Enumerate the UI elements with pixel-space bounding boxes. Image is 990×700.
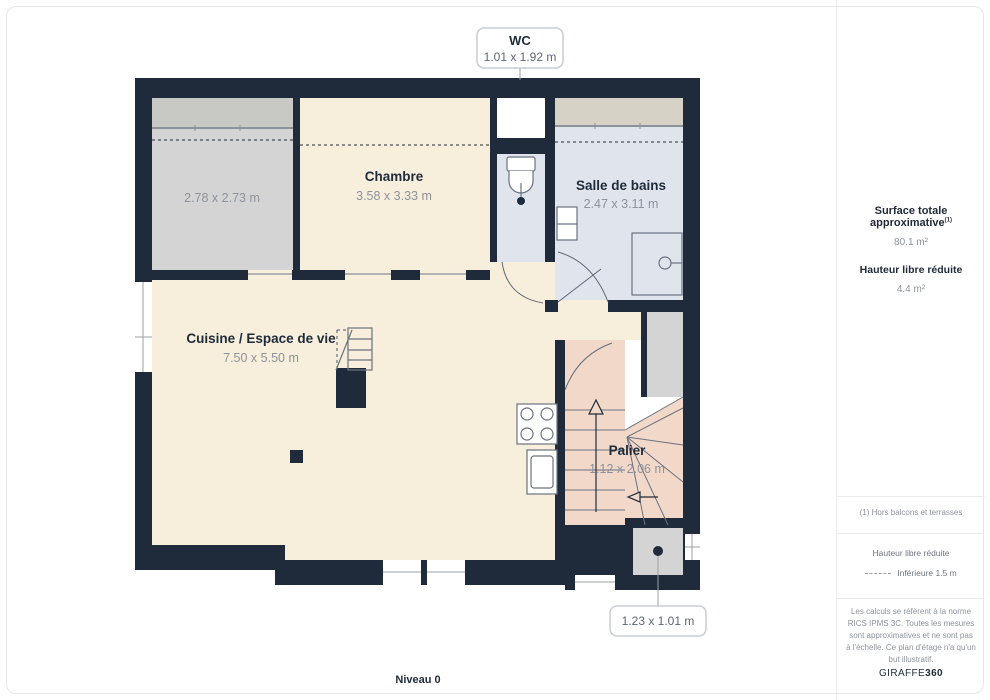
stove-icon xyxy=(517,404,557,444)
divider xyxy=(837,496,985,497)
reduced-height-value: 4.4 m² xyxy=(837,284,985,295)
footnote-balconies: (1) Hors balcons et terrasses xyxy=(837,508,985,517)
divider xyxy=(837,598,985,599)
reduced-height-title: Hauteur libre réduite xyxy=(837,264,985,276)
palier-dims: 1.12 x 2.06 m xyxy=(589,462,665,476)
kitchen-floor xyxy=(152,280,555,545)
bathroom-name: Salle de bains xyxy=(576,178,666,193)
chimney-pillar xyxy=(336,368,366,408)
palier-name: Palier xyxy=(609,443,647,458)
post xyxy=(290,450,303,463)
bathroom-wardrobe xyxy=(555,98,683,126)
bath-sink-icon xyxy=(557,207,577,240)
legend-item-label: Inférieure 1.5 m xyxy=(897,568,957,578)
surface-total-title: Surface totale approximative(1) xyxy=(837,205,985,229)
surface-summary: Surface totale approximative(1) 80.1 m² … xyxy=(837,205,985,295)
cuisine-dims: 7.50 x 5.50 m xyxy=(223,351,299,365)
chambre-name: Chambre xyxy=(365,169,424,184)
hallway-floor xyxy=(555,312,645,340)
disclaimer-text: Les calculs se réfèrent à la norme RICS … xyxy=(846,606,976,666)
storage-wardrobe xyxy=(152,98,293,128)
floor-plan-page: WC 1.01 x 1.92 m 1.23 x 1.01 m 2.78 x 2.… xyxy=(0,0,990,700)
small-room-marker-dot xyxy=(653,546,663,556)
sidebar: Surface totale approximative(1) 80.1 m² … xyxy=(836,0,985,700)
small-room-callout-dims: 1.23 x 1.01 m xyxy=(622,614,695,628)
legend-title: Hauteur libre réduite xyxy=(837,548,985,558)
wc-callout-dims: 1.01 x 1.92 m xyxy=(484,50,557,64)
surface-footnote-marker: (1) xyxy=(945,217,952,223)
stairs-straight-floor xyxy=(565,340,625,525)
level-label: Niveau 0 xyxy=(395,674,440,686)
storage-room-dims: 2.78 x 2.73 m xyxy=(184,191,260,205)
reduced-height-legend: Hauteur libre réduite Inférieure 1.5 m xyxy=(837,548,985,578)
wc-callout-name: WC xyxy=(509,33,531,48)
dashed-line-sample xyxy=(865,573,891,574)
cuisine-name: Cuisine / Espace de vie xyxy=(186,331,336,346)
divider xyxy=(837,533,985,534)
bathroom-dims: 2.47 x 3.11 m xyxy=(584,197,659,211)
side-closet-floor xyxy=(645,312,683,397)
surface-total-value: 80.1 m² xyxy=(837,237,985,248)
kitchen-sink-icon xyxy=(527,450,557,494)
chambre-dims: 3.58 x 3.33 m xyxy=(356,189,432,203)
chambre-floor xyxy=(300,98,490,270)
giraffe360-logo: GIRAFFE360 xyxy=(837,668,985,679)
